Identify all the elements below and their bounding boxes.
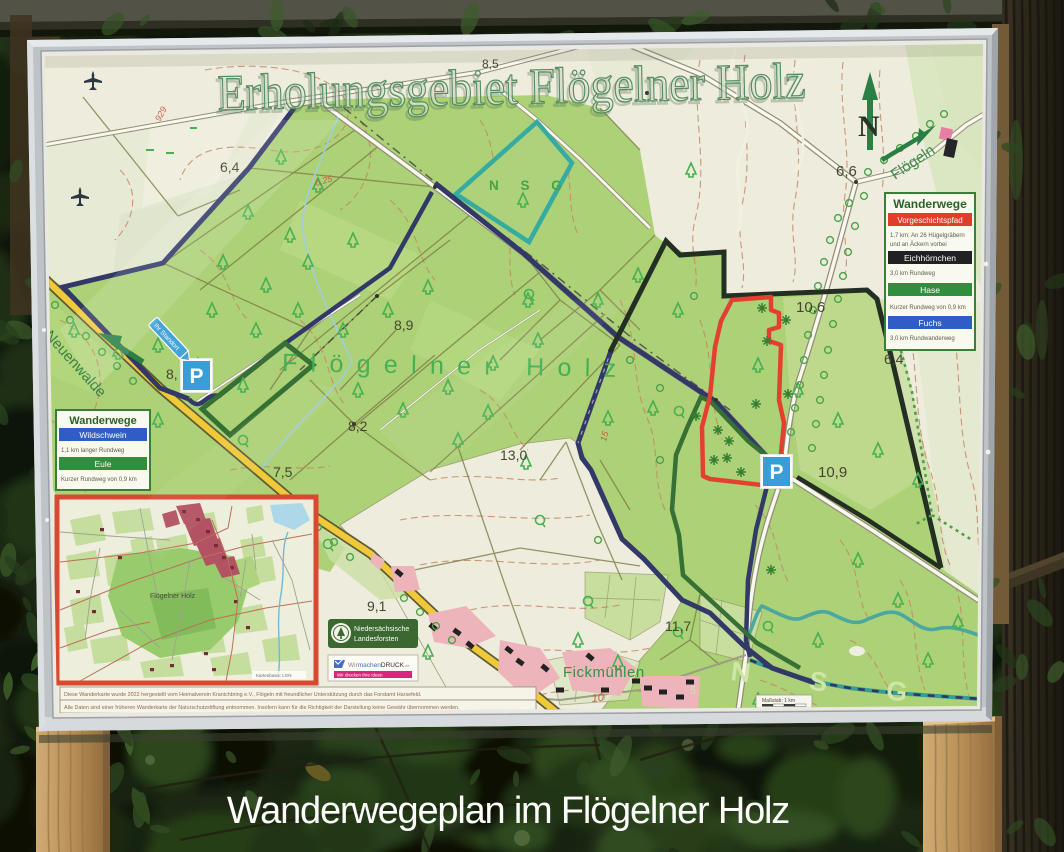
svg-text:Wanderwegeplan im Flögelner Ho: Wanderwegeplan im Flögelner Holz: [227, 790, 789, 832]
